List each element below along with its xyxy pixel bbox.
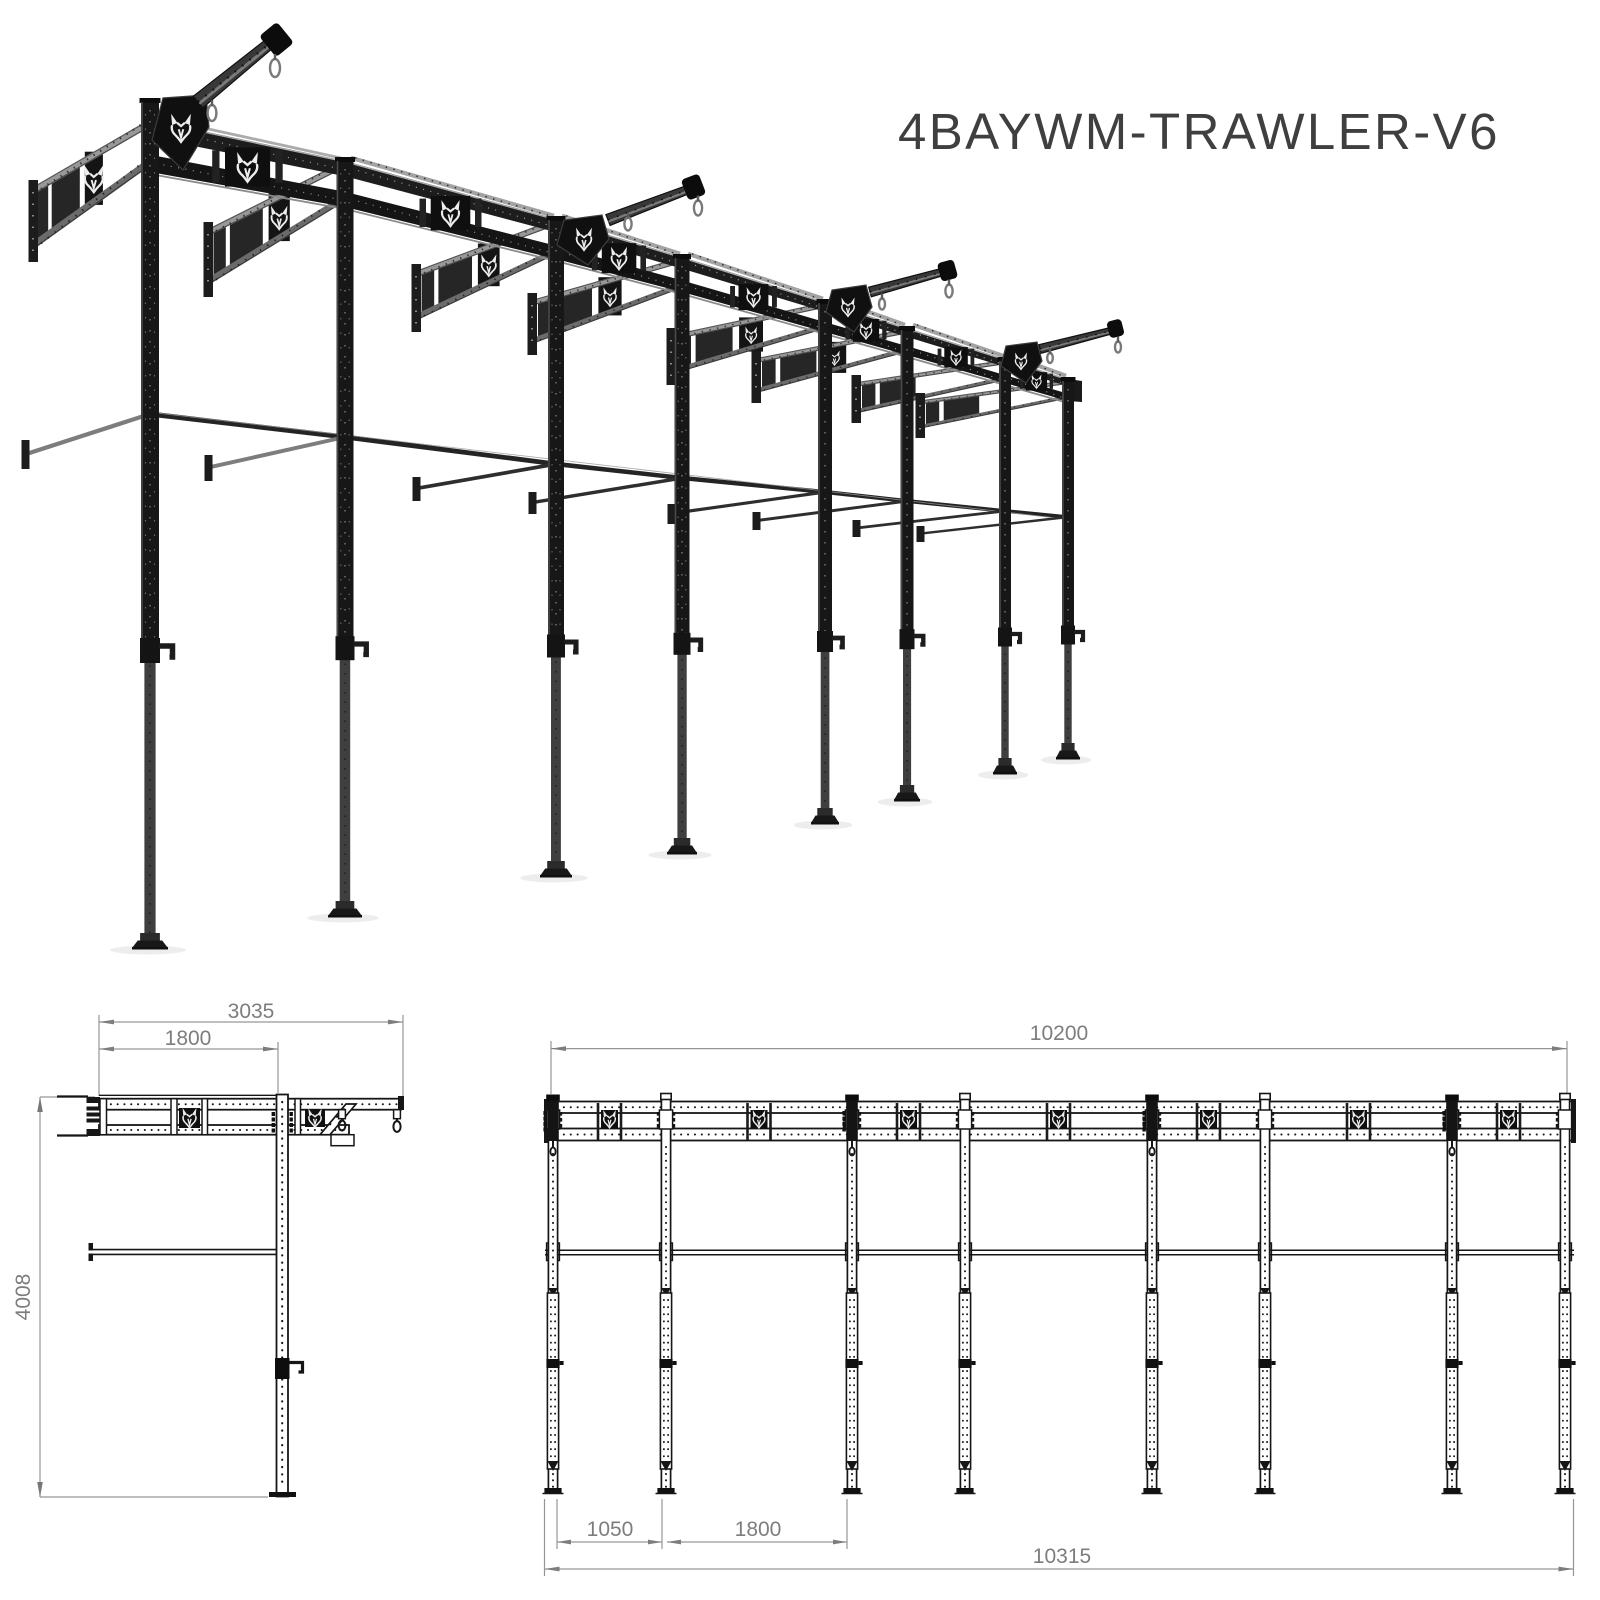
svg-text:3035: 3035 bbox=[228, 1000, 275, 1023]
svg-text:1050: 1050 bbox=[587, 1518, 634, 1541]
svg-text:10200: 10200 bbox=[1030, 1022, 1088, 1045]
svg-text:4008: 4008 bbox=[12, 1274, 35, 1321]
svg-text:1800: 1800 bbox=[735, 1518, 782, 1541]
svg-text:10315: 10315 bbox=[1033, 1545, 1091, 1568]
svg-text:4BAYWM-TRAWLER-V6: 4BAYWM-TRAWLER-V6 bbox=[898, 103, 1500, 160]
svg-text:1800: 1800 bbox=[165, 1027, 212, 1050]
